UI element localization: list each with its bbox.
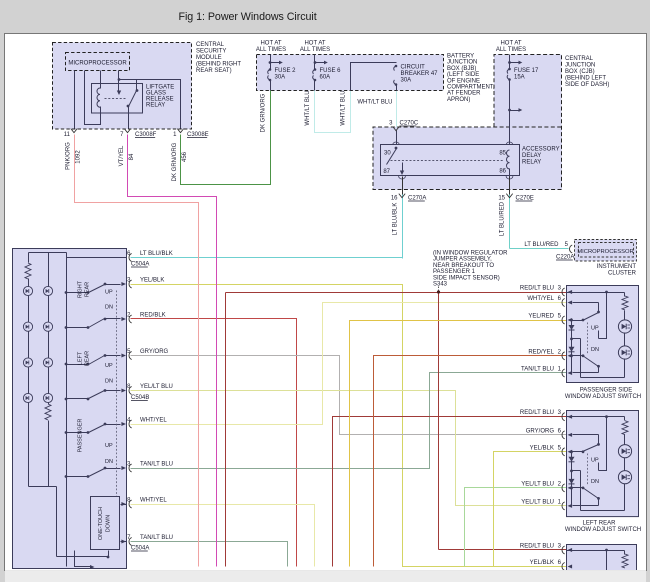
svg-text:REAR SEAT): REAR SEAT)	[196, 68, 232, 74]
svg-text:UP: UP	[591, 326, 599, 332]
svg-text:SIDE IMPACT SENSOR): SIDE IMPACT SENSOR)	[433, 275, 500, 281]
svg-text:BATTERY: BATTERY	[447, 54, 474, 60]
svg-text:WHT/YEL: WHT/YEL	[140, 418, 167, 424]
svg-text:C504A: C504A	[131, 546, 149, 552]
svg-text:BOX (CJB): BOX (CJB)	[565, 69, 595, 75]
svg-text:NEAR BREAKOUT TO: NEAR BREAKOUT TO	[433, 263, 494, 269]
svg-text:RED/LT BLU: RED/LT BLU	[520, 544, 554, 550]
svg-text:C504B: C504B	[131, 395, 149, 401]
svg-text:(BEHIND RIGHT: (BEHIND RIGHT	[196, 62, 241, 68]
svg-text:FUSE 2: FUSE 2	[275, 68, 297, 74]
svg-text:85: 85	[499, 151, 506, 157]
svg-text:UP: UP	[105, 443, 113, 449]
svg-text:S343: S343	[433, 282, 448, 288]
svg-text:BOX (BJB): BOX (BJB)	[447, 66, 476, 72]
svg-text:JUNCTION: JUNCTION	[565, 63, 595, 69]
svg-text:C270C: C270C	[400, 121, 419, 127]
svg-text:456: 456	[182, 151, 188, 162]
svg-text:YEL/BLK: YEL/BLK	[530, 445, 554, 451]
svg-text:15: 15	[498, 196, 505, 202]
svg-text:WHT/YEL: WHT/YEL	[140, 498, 167, 504]
svg-text:COMPARTMENT,: COMPARTMENT,	[447, 85, 495, 91]
svg-text:ALL TIMES: ALL TIMES	[256, 47, 286, 53]
svg-text:APRON): APRON)	[447, 97, 470, 103]
svg-text:11: 11	[64, 132, 71, 138]
svg-text:WHT/YEL: WHT/YEL	[527, 296, 554, 302]
svg-text:C3008F: C3008F	[135, 132, 157, 138]
svg-text:YEL/RED: YEL/RED	[528, 314, 554, 320]
svg-text:OF ENGINE: OF ENGINE	[447, 78, 480, 84]
svg-text:Fig 1: Power Windows Circuit: Fig 1: Power Windows Circuit	[179, 11, 317, 23]
svg-text:RED/YEL: RED/YEL	[528, 349, 554, 355]
svg-text:YEL/BLK: YEL/BLK	[140, 278, 164, 284]
svg-text:DN: DN	[591, 479, 599, 485]
svg-text:DK GRN/ORG: DK GRN/ORG	[172, 142, 178, 181]
svg-text:DOWN: DOWN	[106, 515, 112, 532]
svg-text:DK GRN/ORG: DK GRN/ORG	[261, 93, 267, 132]
svg-text:(LEFT SIDE: (LEFT SIDE	[447, 72, 479, 78]
svg-text:C3008E: C3008E	[187, 132, 209, 138]
svg-text:DELAY: DELAY	[522, 153, 541, 159]
svg-text:YEL/BLK: YEL/BLK	[530, 560, 554, 566]
svg-text:1092: 1092	[76, 150, 82, 164]
svg-text:86: 86	[499, 169, 506, 175]
svg-text:JUNCTION: JUNCTION	[447, 60, 477, 66]
svg-text:CENTRAL: CENTRAL	[565, 56, 594, 62]
svg-text:ONE-TOUCH: ONE-TOUCH	[98, 507, 104, 540]
svg-text:YEL/LT BLU: YEL/LT BLU	[521, 499, 554, 505]
svg-text:UP: UP	[105, 363, 113, 369]
svg-text:LT BLU/RED: LT BLU/RED	[500, 201, 506, 236]
svg-text:WINDOW ADJUST SWITCH: WINDOW ADJUST SWITCH	[565, 394, 641, 400]
svg-text:RED/LT BLU: RED/LT BLU	[520, 286, 554, 292]
svg-text:DN: DN	[591, 347, 599, 353]
svg-text:GRY/ORG: GRY/ORG	[526, 428, 555, 434]
svg-text:RELAY: RELAY	[146, 103, 165, 109]
svg-text:TAN/LT BLU: TAN/LT BLU	[140, 462, 173, 468]
svg-text:C270A: C270A	[408, 196, 426, 202]
svg-text:UP: UP	[591, 457, 599, 463]
svg-text:YEL/LT BLU: YEL/LT BLU	[140, 384, 173, 390]
svg-text:RED/LT BLU: RED/LT BLU	[520, 410, 554, 416]
svg-text:SECURITY: SECURITY	[196, 49, 226, 55]
svg-text:(IN WINDOW REGULATOR: (IN WINDOW REGULATOR	[433, 251, 508, 257]
svg-text:RELAY: RELAY	[522, 160, 541, 166]
svg-text:30A: 30A	[275, 75, 286, 81]
svg-text:AT FENDER: AT FENDER	[447, 91, 481, 97]
svg-text:DN: DN	[105, 459, 113, 465]
svg-text:WHT/LT BLU: WHT/LT BLU	[341, 90, 347, 125]
svg-text:REAR: REAR	[85, 282, 91, 297]
svg-text:RED/BLK: RED/BLK	[140, 313, 166, 319]
svg-text:RIGHT: RIGHT	[78, 280, 84, 298]
svg-text:C270E: C270E	[516, 196, 534, 202]
svg-text:DN: DN	[105, 305, 113, 311]
svg-text:60A: 60A	[320, 75, 331, 81]
svg-text:LEFT REAR: LEFT REAR	[583, 521, 617, 527]
svg-text:16: 16	[391, 196, 398, 202]
svg-text:WINDOW ADJUST SWITCH: WINDOW ADJUST SWITCH	[565, 527, 641, 533]
svg-text:LT BLU/BLK: LT BLU/BLK	[140, 251, 173, 257]
svg-text:WHT/LT BLU: WHT/LT BLU	[357, 100, 392, 106]
svg-text:BREAKER 47: BREAKER 47	[401, 71, 439, 77]
svg-text:CENTRAL: CENTRAL	[196, 42, 225, 48]
svg-text:INSTRUMENT: INSTRUMENT	[597, 264, 637, 270]
svg-text:TAN/LT BLU: TAN/LT BLU	[140, 535, 173, 541]
svg-text:CIRCUIT: CIRCUIT	[401, 65, 426, 71]
svg-text:30: 30	[384, 151, 391, 157]
svg-text:ACCESSORY: ACCESSORY	[522, 147, 560, 153]
svg-text:WHT/LT BLU: WHT/LT BLU	[305, 90, 311, 125]
svg-text:REAR: REAR	[85, 351, 91, 366]
svg-text:FUSE 6: FUSE 6	[320, 68, 342, 74]
svg-text:HOT AT: HOT AT	[500, 41, 521, 47]
svg-text:MICROPROCESSOR: MICROPROCESSOR	[68, 61, 127, 67]
svg-text:LT BLU/BLK: LT BLU/BLK	[393, 203, 399, 236]
svg-text:LEFT: LEFT	[78, 351, 84, 365]
svg-text:87: 87	[383, 169, 390, 175]
svg-text:ALL TIMES: ALL TIMES	[300, 47, 330, 53]
svg-text:MODULE: MODULE	[196, 55, 222, 61]
svg-text:FUSE 17: FUSE 17	[514, 68, 539, 74]
svg-text:UP: UP	[105, 290, 113, 296]
svg-text:84: 84	[129, 153, 135, 160]
svg-text:MICROPROCESSOR: MICROPROCESSOR	[577, 249, 633, 255]
svg-text:15A: 15A	[514, 75, 525, 81]
svg-text:VT/YEL: VT/YEL	[119, 145, 125, 166]
svg-text:GRY/ORG: GRY/ORG	[140, 349, 169, 355]
svg-text:HOT AT: HOT AT	[260, 41, 281, 47]
svg-text:C504A: C504A	[131, 262, 149, 268]
svg-text:ALL TIMES: ALL TIMES	[496, 47, 526, 53]
svg-text:TAN/LT BLU: TAN/LT BLU	[521, 367, 554, 373]
svg-text:PASSENGER 1: PASSENGER 1	[433, 269, 476, 275]
svg-text:PNK/ORG: PNK/ORG	[66, 142, 72, 170]
svg-text:JUMPER ASSEMBLY,: JUMPER ASSEMBLY,	[433, 257, 492, 263]
svg-text:DN: DN	[105, 379, 113, 385]
svg-text:(BEHIND LEFT: (BEHIND LEFT	[565, 76, 606, 82]
svg-text:HOT AT: HOT AT	[304, 41, 325, 47]
svg-text:SIDE OF DASH): SIDE OF DASH)	[565, 82, 609, 88]
svg-text:YEL/LT BLU: YEL/LT BLU	[521, 481, 554, 487]
svg-text:30A: 30A	[401, 78, 412, 84]
svg-text:LT BLU/RED: LT BLU/RED	[524, 242, 559, 248]
svg-text:PASSENGER: PASSENGER	[78, 419, 84, 453]
svg-text:C220A: C220A	[556, 255, 574, 261]
svg-text:PASSENGER SIDE: PASSENGER SIDE	[580, 388, 633, 394]
svg-text:CLUSTER: CLUSTER	[608, 271, 637, 277]
